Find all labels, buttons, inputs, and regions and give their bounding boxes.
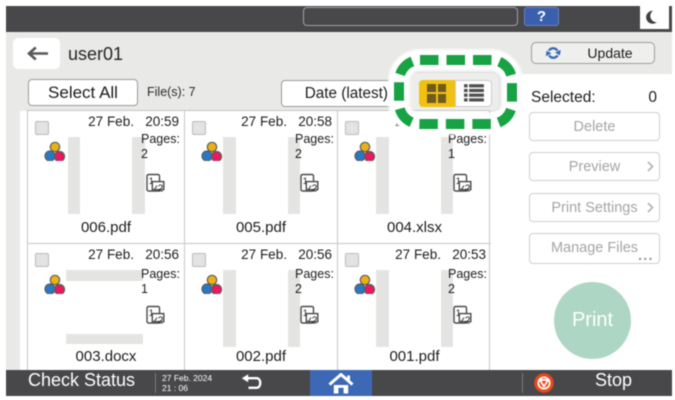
svg-text:2: 2: [157, 184, 163, 194]
svg-text:2: 2: [464, 184, 470, 194]
svg-text:2: 2: [157, 316, 163, 326]
svg-text:2: 2: [464, 316, 470, 326]
svg-text:2: 2: [311, 316, 317, 326]
svg-text:2: 2: [311, 184, 317, 194]
